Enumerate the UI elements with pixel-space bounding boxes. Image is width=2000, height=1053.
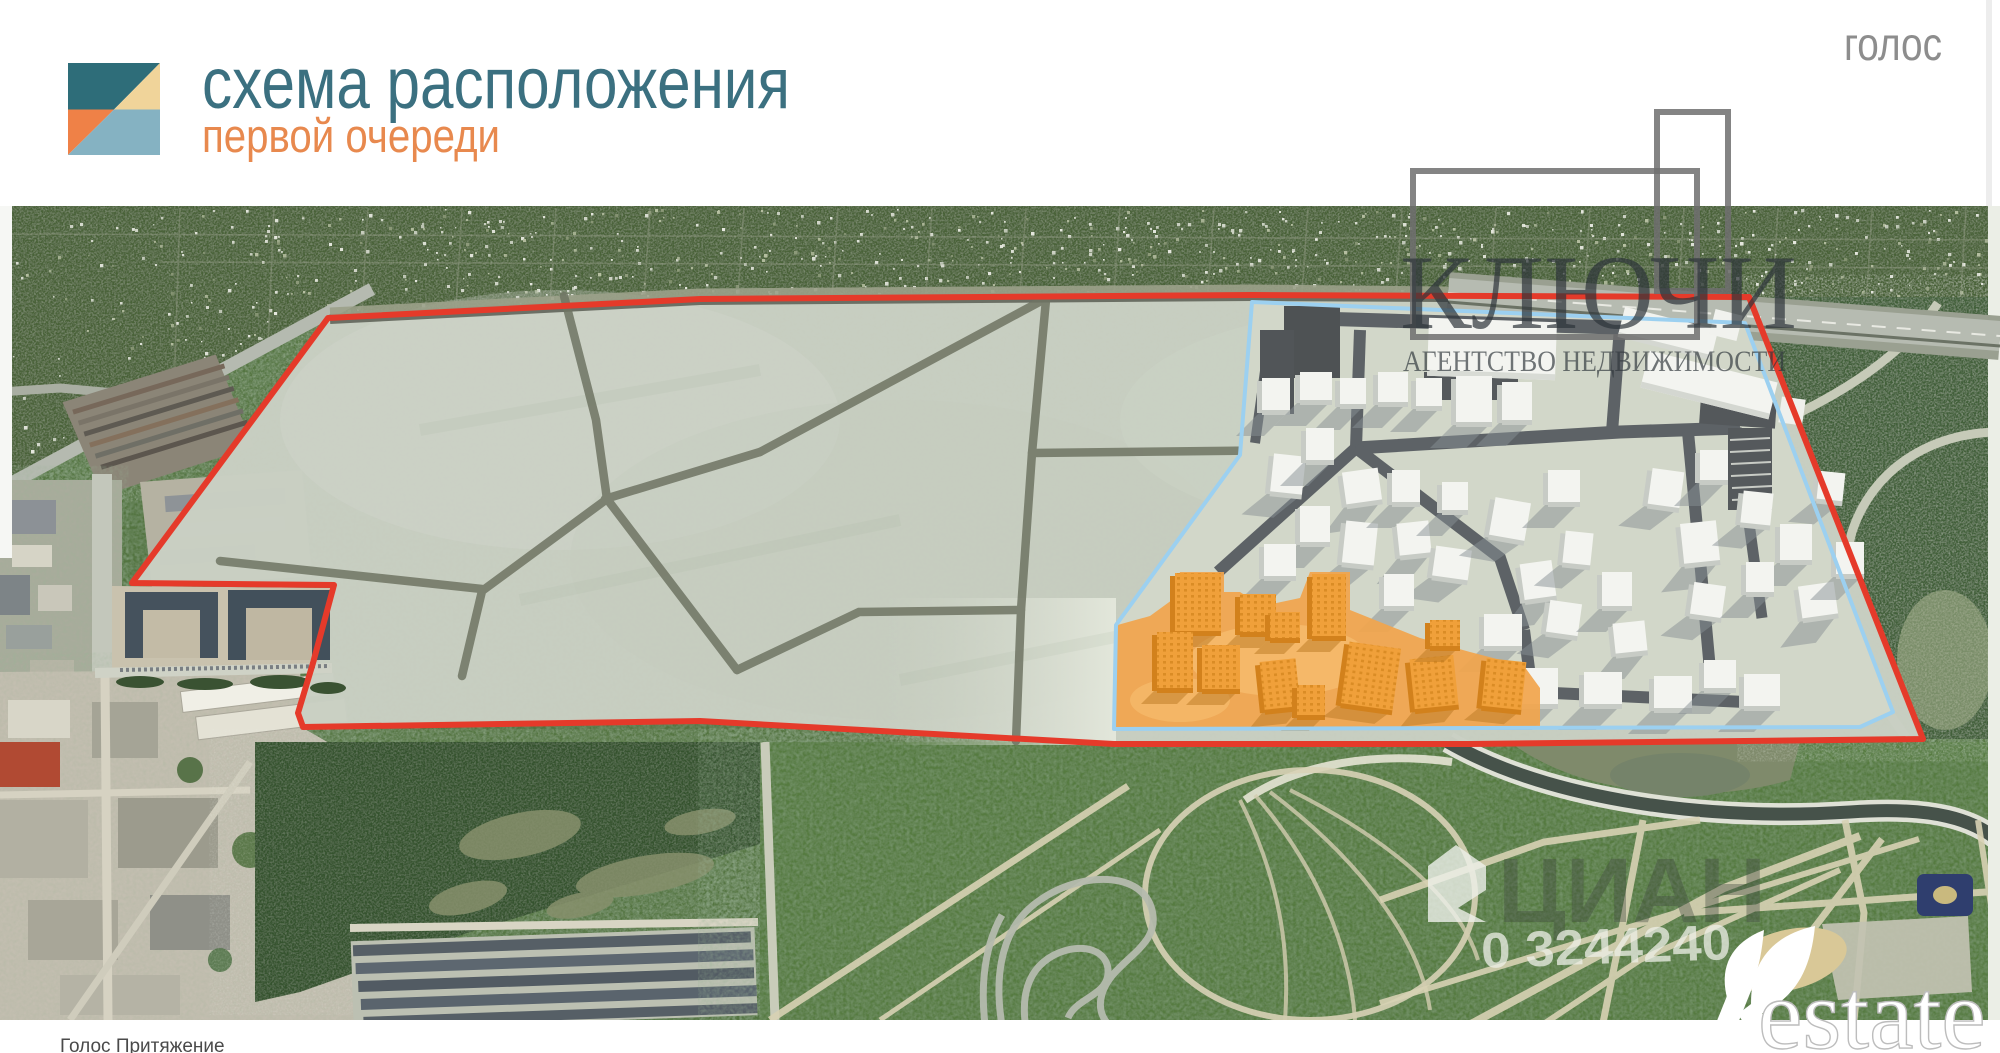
svg-text:АГЕНТСТВО НЕДВИЖИМОСТИ: АГЕНТСТВО НЕДВИЖИМОСТИ xyxy=(1403,345,1786,378)
svg-text:голос: голос xyxy=(1844,18,1942,70)
svg-text:0 3244240: 0 3244240 xyxy=(1480,914,1732,979)
svg-text:первой очереди: первой очереди xyxy=(202,109,500,162)
svg-text:КЛЮЧИ: КЛЮЧИ xyxy=(1400,234,1797,351)
svg-text:Голос Притяжение: Голос Притяжение xyxy=(60,1036,225,1053)
svg-text:estate: estate xyxy=(1758,959,1986,1053)
